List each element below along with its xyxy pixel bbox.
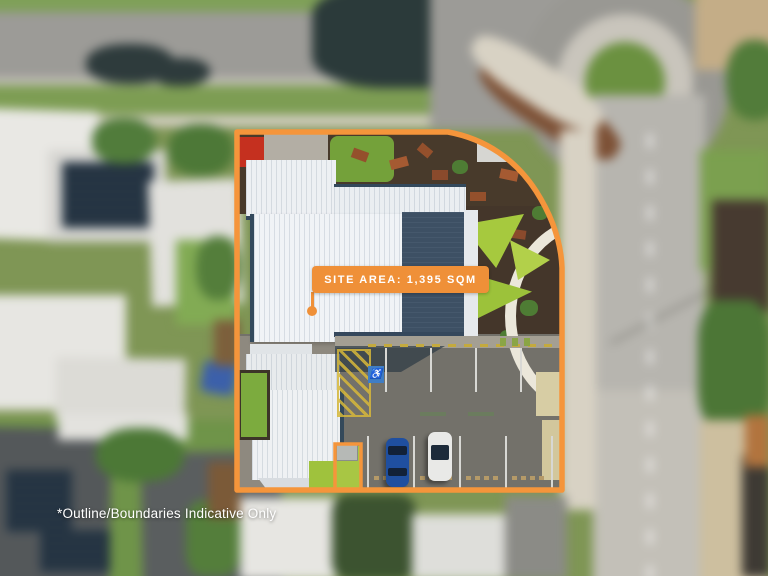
shed bbox=[336, 444, 358, 461]
deck-table bbox=[432, 170, 448, 180]
parking-line bbox=[459, 436, 461, 490]
building-roof bbox=[246, 160, 336, 220]
parking-line bbox=[413, 436, 415, 490]
parking-line bbox=[367, 436, 369, 490]
drain-grate bbox=[420, 412, 446, 416]
aerial-photo-canvas: ♿ SITE AREA: 1,395 SQM bbox=[0, 0, 768, 576]
drain-grate bbox=[468, 412, 494, 416]
tree bbox=[726, 40, 768, 120]
tree bbox=[92, 118, 156, 164]
house-roof-dark bbox=[742, 455, 768, 576]
garden-bed bbox=[214, 320, 240, 366]
grass-tufts bbox=[500, 338, 530, 346]
site-area-badge: SITE AREA: 1,395 SQM bbox=[312, 266, 489, 293]
tree-shadow bbox=[150, 58, 210, 86]
planter-box bbox=[536, 372, 560, 416]
plant bbox=[452, 160, 468, 174]
disclaimer-text: *Outline/Boundaries Indicative Only bbox=[57, 506, 276, 521]
lane-dashes bbox=[648, 120, 652, 576]
wheelchair-glyph: ♿ bbox=[370, 369, 382, 380]
tree bbox=[168, 124, 234, 176]
plant bbox=[532, 206, 548, 220]
leader-dot-icon bbox=[307, 306, 317, 316]
tree bbox=[196, 236, 240, 300]
site-area-label: SITE AREA: 1,395 SQM bbox=[324, 274, 477, 286]
car-window bbox=[388, 468, 407, 476]
house-roof-dark bbox=[712, 200, 768, 312]
parking-line bbox=[505, 436, 507, 490]
car-window bbox=[388, 446, 407, 455]
paving bbox=[505, 496, 567, 576]
solar-panels bbox=[40, 530, 110, 572]
roof-tile-patch bbox=[745, 415, 768, 467]
wheel-stop bbox=[512, 476, 546, 480]
house-roof bbox=[412, 514, 508, 576]
solar-panels bbox=[62, 162, 154, 228]
solar-panels bbox=[6, 470, 72, 532]
parking-line bbox=[551, 436, 553, 490]
wheel-stop bbox=[466, 476, 500, 480]
car-window bbox=[431, 445, 449, 460]
deck-table bbox=[470, 192, 486, 201]
trees bbox=[332, 494, 416, 576]
yellow-hatching bbox=[337, 349, 371, 417]
parking-line bbox=[520, 348, 522, 392]
parking-line bbox=[430, 348, 432, 392]
parking-line bbox=[475, 348, 477, 392]
parking-line bbox=[385, 348, 387, 392]
playground-turf bbox=[238, 370, 270, 440]
tree bbox=[96, 428, 184, 482]
accessible-parking-icon: ♿ bbox=[368, 366, 384, 383]
trees bbox=[698, 300, 768, 430]
paving bbox=[264, 134, 328, 160]
footpath-right bbox=[560, 130, 596, 510]
